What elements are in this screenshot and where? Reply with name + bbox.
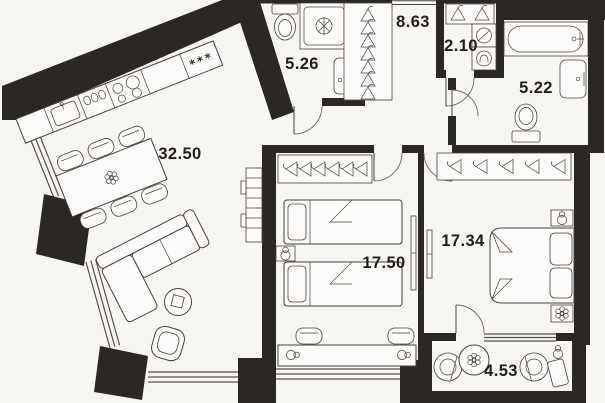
side-table <box>547 346 569 388</box>
pillow <box>550 268 572 298</box>
double-bed <box>490 228 574 303</box>
desk-chair <box>296 328 322 344</box>
shower-cabin-icon <box>300 3 348 49</box>
floor-plan-page: *** <box>0 0 605 403</box>
floor-plan-svg: *** <box>0 0 605 403</box>
room-label-bath-main: 5.22 <box>519 79 553 97</box>
room-label-balcony: 4.53 <box>484 362 518 380</box>
room-label-bedroom-right: 17.34 <box>441 232 485 250</box>
desk <box>278 328 416 366</box>
nightstand <box>276 246 295 261</box>
room-label-hallway: 8.63 <box>396 13 430 31</box>
nightstand <box>551 305 573 322</box>
wardrobe <box>437 153 571 180</box>
radiator <box>411 216 416 290</box>
bathtub-icon <box>504 22 588 56</box>
radiator <box>427 230 432 278</box>
wardrobe <box>278 155 372 183</box>
coffee-table <box>165 289 192 316</box>
single-bed <box>284 200 402 244</box>
lamp-icon <box>553 346 562 359</box>
pillow <box>288 204 306 240</box>
sofa <box>95 209 225 324</box>
toilet-icon <box>272 4 298 40</box>
balcony-armchair <box>517 350 551 384</box>
room-label-bath-small: 5.26 <box>285 55 319 73</box>
storage-rack <box>241 168 262 242</box>
room-label-living: 32.50 <box>158 145 201 163</box>
pillow <box>288 266 306 302</box>
wardrobe <box>344 3 392 100</box>
room-label-closet: 2.10 <box>444 37 478 55</box>
nightstand <box>551 210 573 226</box>
armchair <box>149 324 187 363</box>
pillow <box>550 233 572 265</box>
desk-chair <box>388 328 414 344</box>
entry-door <box>392 0 436 5</box>
room-label-bedroom-left: 17.50 <box>362 254 405 272</box>
toilet-icon <box>512 104 540 142</box>
washbasin-icon <box>560 60 586 98</box>
